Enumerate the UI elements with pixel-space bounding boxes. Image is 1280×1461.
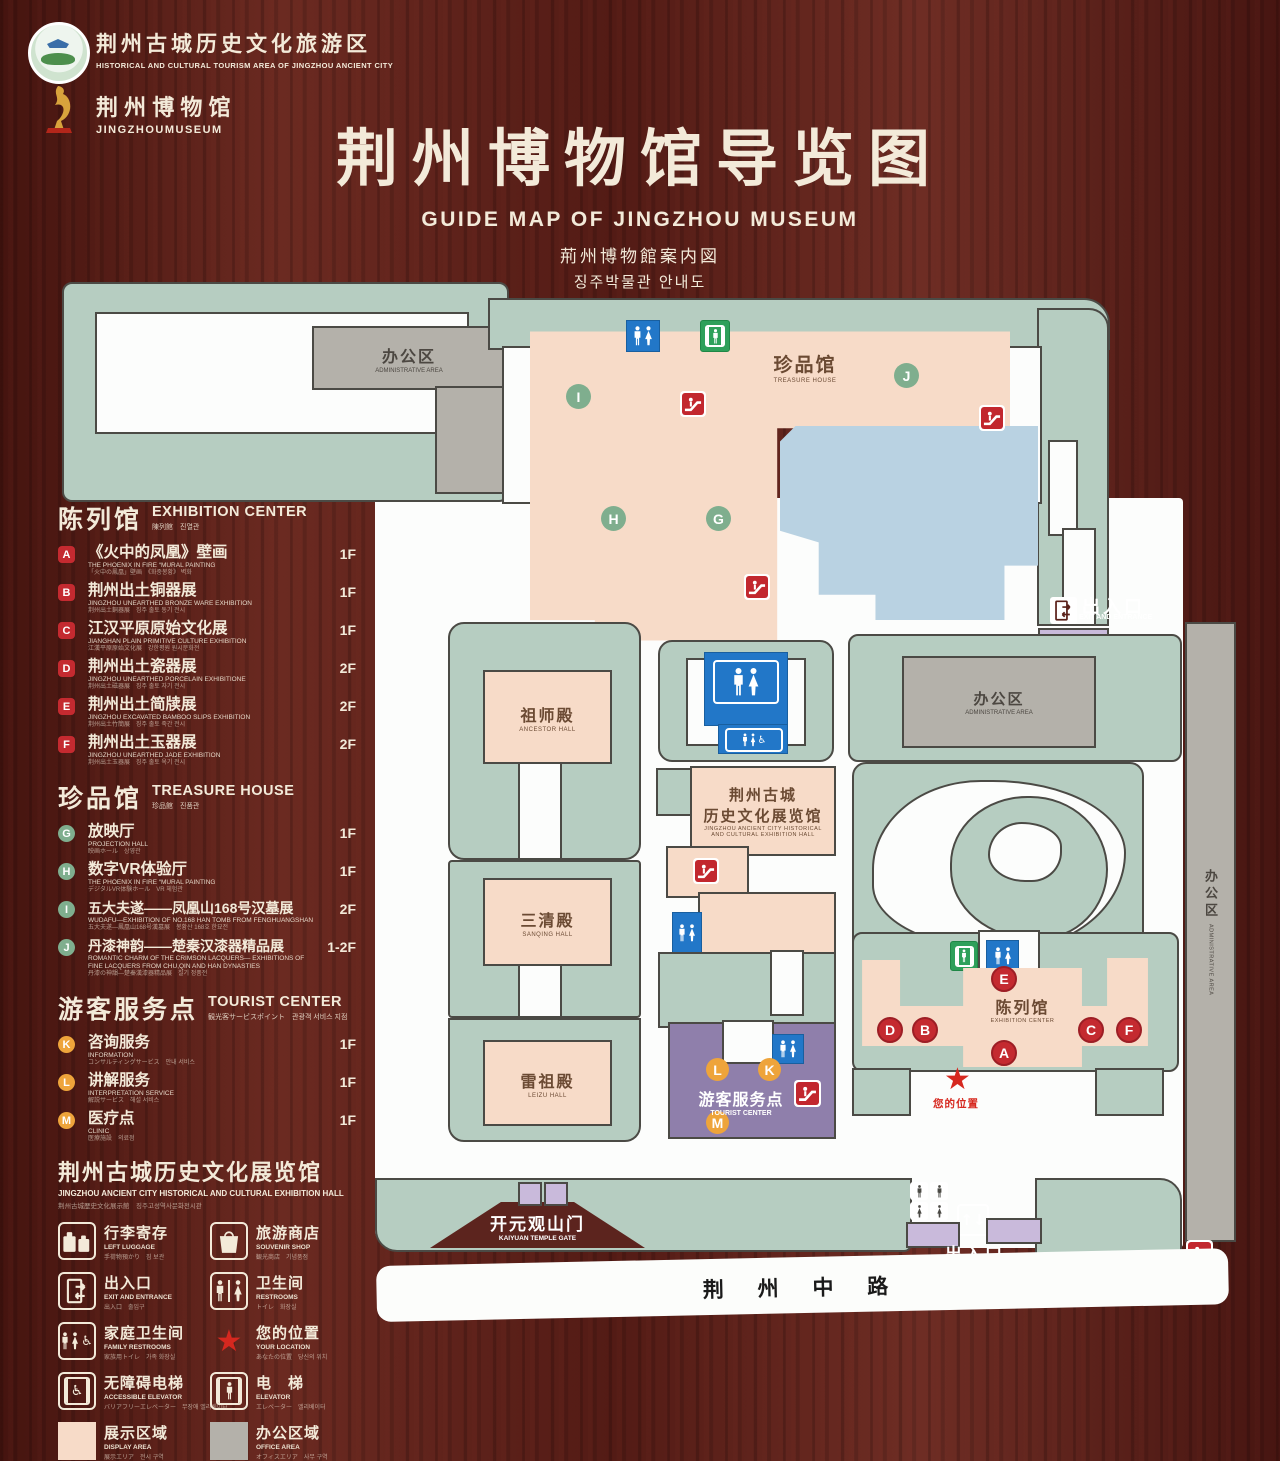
symbol-souvenir-shop: 旅游商店 SOUVENIR SHOP 観光商店 기념품점 xyxy=(210,1222,356,1261)
sym3-en: RESTROOMS xyxy=(256,1294,304,1301)
sym6-en: ACCESSIBLE ELEVATOR xyxy=(104,1394,228,1401)
marker-I: I xyxy=(566,384,591,409)
ancestor-corridor xyxy=(518,758,562,860)
symbol-elevator: 电 梯 ELEVATOR エレベーター 엘리베이터 xyxy=(210,1372,356,1411)
sanqing-hall-building: 三清殿 SANQING HALL xyxy=(483,878,612,966)
item-F-zh: 荆州出土玉器展 xyxy=(88,734,314,752)
leizu-hall-building: 雷祖殿 LEIZU HALL xyxy=(483,1040,612,1126)
symbol-exit-entrance: 出入口 EXIT AND ENTRANCE 出入口 출입구 xyxy=(58,1272,210,1311)
museum-logo-title: 荆 州 博 物 馆 JINGZHOUMUSEUM xyxy=(96,90,230,136)
item-E-sub: 荆州出土竹簡展 징주 출토 죽간 전시 xyxy=(88,722,314,729)
admin-e-label-en: ADMINISTRATIVE AREA xyxy=(965,710,1033,716)
pond xyxy=(780,426,1038,620)
sec3-en: TOURIST CENTER xyxy=(208,994,347,1010)
restroom-sign-north-icon xyxy=(626,320,660,352)
item-F-en: JINGZHOU UNEARTHED JADE EXHIBITION xyxy=(88,752,314,760)
badge-F: F xyxy=(58,736,75,753)
sym5-en: YOUR LOCATION xyxy=(256,1344,327,1351)
item-L-en: INTERPRETATION SERVICE xyxy=(88,1090,314,1098)
item-E-en: JINGZHOU EXCAVATED BAMBOO SLIPS EXHIBITI… xyxy=(88,714,314,722)
badge-E: E xyxy=(58,698,75,715)
museum-logo-en: JINGZHOUMUSEUM xyxy=(96,124,230,136)
badge-A: A xyxy=(58,546,75,563)
item-L-zh: 讲解服务 xyxy=(88,1072,314,1090)
hist-hall-lower xyxy=(698,892,836,956)
item-C-zh: 江汉平原原始文化展 xyxy=(88,620,314,638)
item-A-zh: 《火中的凤凰》壁画 xyxy=(88,544,314,562)
badge-B: B xyxy=(58,584,75,601)
legend-section-exhibition-header: 陈列馆 EXHIBITION CENTER 陳列館 진열관 xyxy=(58,500,356,536)
leizu-label-zh: 雷祖殿 xyxy=(520,1068,574,1092)
admin-nw-building: 办公区 ADMINISTRATIVE AREA xyxy=(312,326,506,390)
your-location-label: 您的位置 xyxy=(933,1096,979,1111)
item-E-zh: 荆州出土简牍展 xyxy=(88,696,314,714)
tourist-label-zh: 游客服务点 xyxy=(676,1086,806,1110)
item-C-floor: 1F xyxy=(320,622,356,653)
item-C-en: JIANGHAN PLAIN PRIMITIVE CULTURE EXHIBIT… xyxy=(88,638,314,646)
sym0-zh: 行李寄存 xyxy=(104,1222,168,1243)
hist-hall-en2: AND CULTURAL EXHIBITION HALL xyxy=(711,832,815,838)
hall-note: 荆州古城历史文化展览馆 JINGZHOU ANCIENT CITY HISTOR… xyxy=(58,1155,356,1210)
page-title: 荆州博物馆导览图 xyxy=(250,108,1030,198)
treasure-house-label: 珍品馆 TREASURE HOUSE xyxy=(745,350,865,392)
item-J-zh: 丹漆神韵——楚秦汉漆器精品展 xyxy=(88,937,314,955)
gate-pillar-w xyxy=(518,1182,542,1206)
item-K-zh: 咨询服务 xyxy=(88,1034,314,1052)
legend-item-B: B 荆州出土铜器展 JINGZHOU UNEARTHED BRONZE WARE… xyxy=(58,582,356,615)
item-G-sub: 映画ホール 상영관 xyxy=(88,849,314,856)
location-star-icon: ★ xyxy=(210,1322,248,1360)
marker-D: D xyxy=(877,1017,903,1043)
item-A-floor: 1F xyxy=(320,546,356,577)
hist-hall-main: 荆州古城 历史文化展览馆 JINGZHOU ANCIENT CITY HISTO… xyxy=(690,766,836,856)
sec2-zh: 珍品馆 xyxy=(58,779,142,815)
sym1-zh: 旅游商店 xyxy=(256,1222,320,1243)
legend-item-A: A 《火中的凤凰》壁画 THE PHOENIX IN FIRE “MURAL P… xyxy=(58,544,356,577)
museum-logo-zh: 荆 州 博 物 馆 xyxy=(96,90,230,122)
item-C-sub: 江漢平原原始文化展 강한평원 원시문화전 xyxy=(88,646,314,653)
tourist-lawn xyxy=(658,952,836,1028)
sym7-sub: エレベーター 엘리베이터 xyxy=(256,1402,326,1411)
sym0-en: LEFT LUGGAGE xyxy=(104,1244,168,1251)
exhibition-grounds-tab-e xyxy=(1095,1068,1164,1116)
ancestor-label-en: ANCESTOR HALL xyxy=(519,727,575,733)
exhibition-label: 陈列馆 EXHIBITION CENTER xyxy=(960,994,1085,1024)
marker-A: A xyxy=(991,1040,1017,1066)
sanqing-label-zh: 三清殿 xyxy=(520,907,574,931)
legend-item-G: G 放映厅 PROJECTION HALL 映画ホール 상영관 1F xyxy=(58,823,356,856)
item-G-en: PROJECTION HALL xyxy=(88,841,314,849)
badge-K: K xyxy=(58,1036,75,1053)
item-H-floor: 1F xyxy=(320,863,356,894)
sym4-sub: 家族用トイレ 가족 화장실 xyxy=(104,1352,184,1361)
admin-nw-label-en: ADMINISTRATIVE AREA xyxy=(375,368,443,374)
sym4-zh: 家庭卫生间 xyxy=(104,1322,184,1343)
sym4-en: FAMILY RESTROOMS xyxy=(104,1344,184,1351)
admin-strip-building: 办公区 ADMINISTRATIVE AREA xyxy=(1185,622,1236,1242)
garden-pondlet xyxy=(988,822,1062,882)
office-area-swatch xyxy=(210,1422,248,1460)
page-title-block: 荆州博物馆导览图 GUIDE MAP OF JINGZHOU MUSEUM 荊州… xyxy=(250,108,1030,292)
tourism-area-en: HISTORICAL AND CULTURAL TOURISM AREA OF … xyxy=(96,61,393,70)
tourist-center-label: 游客服务点 TOURIST CENTER xyxy=(676,1086,806,1117)
gate-label-zh: 开元观山门 xyxy=(455,1210,620,1235)
item-D-sub: 荆州出土磁器展 징주 출토 자기 전시 xyxy=(88,684,314,691)
item-D-zh: 荆州出土瓷器展 xyxy=(88,658,314,676)
family-restroom-icon: ♿ xyxy=(58,1322,96,1360)
hist-hall-en1: JINGZHOU ANCIENT CITY HISTORICAL xyxy=(704,826,822,832)
ancestor-label-zh: 祖师殿 xyxy=(520,702,574,726)
leizu-label-en: LEIZU HALL xyxy=(528,1093,567,1099)
item-H-en: THE PHOENIX IN FIRE “MURAL PAINTING xyxy=(88,879,314,887)
item-J-floor: 1-2F xyxy=(320,939,356,978)
admin-strip-label-zh: 办公区 xyxy=(1201,869,1220,920)
legend-item-C: C 江汉平原原始文化展 JIANGHAN PLAIN PRIMITIVE CUL… xyxy=(58,620,356,653)
legend-item-H: H 数字VR体验厅 THE PHOENIX IN FIRE “MURAL PAI… xyxy=(58,861,356,894)
elevator-sign-exhibition-icon xyxy=(950,941,978,971)
sym7-zh: 电 梯 xyxy=(256,1372,326,1393)
sanqing-corridor xyxy=(518,960,562,1018)
admin-nw-label-zh: 办公区 xyxy=(382,343,436,367)
badge-C: C xyxy=(58,622,75,639)
page-title-en: GUIDE MAP OF JINGZHOU MUSEUM xyxy=(250,208,1030,232)
sec3-sub: 観光客サービスポイント 관광객 서비스 지점 xyxy=(208,1012,347,1022)
escalator-icon-2 xyxy=(979,405,1005,431)
accessible-elevator-icon: ♿ xyxy=(58,1372,96,1410)
display-area-swatch xyxy=(58,1422,96,1460)
admin-e-label-zh: 办公区 xyxy=(973,688,1024,709)
item-K-en: INFORMATION xyxy=(88,1052,314,1060)
symbol-left-luggage: 行李寄存 LEFT LUGGAGE 手荷物預かり 짐 보관 xyxy=(58,1222,210,1261)
sec1-sub: 陳列館 진열관 xyxy=(152,522,307,532)
page-title-ja: 荊州博物館案内図 xyxy=(250,242,1030,267)
sec1-zh: 陈列馆 xyxy=(58,500,142,536)
shopping-bag-icon xyxy=(210,1222,248,1260)
restroom-sign-central-icon xyxy=(704,652,788,726)
escalator-icon-1 xyxy=(680,391,706,417)
escalator-icon-3 xyxy=(744,574,770,600)
sanqing-label-en: SANQING HALL xyxy=(522,932,572,938)
museum-logo-phoenix-icon xyxy=(34,84,82,134)
area0-en: DISPLAY AREA xyxy=(104,1444,168,1451)
item-B-en: JINGZHOU UNEARTHED BRONZE WARE EXHIBITIO… xyxy=(88,600,314,608)
sym2-sub: 出入口 출입구 xyxy=(104,1302,172,1311)
restroom-icon xyxy=(210,1272,248,1310)
symbol-your-location: ★ 您的位置 YOUR LOCATION あなたの位置 당신의 위치 xyxy=(210,1322,356,1361)
tourist-label-en: TOURIST CENTER xyxy=(676,1110,806,1117)
item-H-sub: デジタルVR体験ホール VR 체험관 xyxy=(88,887,314,894)
guide-map-poster: { "palette":{ "wood":"#5a2019","cream":"… xyxy=(0,0,1280,1451)
item-M-en: CLINIC xyxy=(88,1128,314,1136)
legend-item-I: I 五大夫遂——凤凰山168号汉墓展 WUDAFU—EXHIBITION OF … xyxy=(58,899,356,932)
hills-icon xyxy=(41,53,75,65)
item-D-floor: 2F xyxy=(320,660,356,691)
item-K-sub: コンサルティングサービス 안내 서비스 xyxy=(88,1060,314,1067)
legend-item-K: K 咨询服务 INFORMATION コンサルティングサービス 안내 서비스 1… xyxy=(58,1034,356,1067)
sym2-zh: 出入口 xyxy=(104,1272,172,1293)
item-I-sub: 五大夫遂—鳳凰山168号漢墓展 봉황산 168호 한묘전 xyxy=(88,925,314,932)
sym3-sub: トイレ 화장실 xyxy=(256,1302,304,1311)
hall-note-sub: 荆州古城歴史文化展示館 징주고성역사문화전시관 xyxy=(58,1200,356,1210)
marker-C: C xyxy=(1078,1017,1104,1043)
legend-section-tourist-header: 游客服务点 TOURIST CENTER 観光客サービスポイント 관광객 서비스… xyxy=(58,990,356,1026)
updown-arrows-icon: ↑↓ xyxy=(957,1204,989,1236)
pavilion-icon xyxy=(47,39,69,48)
ancestor-hall-building: 祖师殿 ANCESTOR HALL xyxy=(483,670,612,764)
area-office: 办公区域 OFFICE AREA オフィスエリア 사무 구역 xyxy=(210,1422,356,1461)
item-I-en: WUDAFU—EXHIBITION OF NO.168 HAN TOMB FRO… xyxy=(88,917,314,925)
elevator-sign-north-icon xyxy=(700,320,730,352)
hist-hall-zh1: 荆州古城 xyxy=(729,784,797,805)
item-M-floor: 1F xyxy=(320,1112,356,1143)
legend-item-E: E 荆州出土简牍展 JINGZHOU EXCAVATED BAMBOO SLIP… xyxy=(58,696,356,729)
item-J-en: ROMANTIC CHARM OF THE CRIMSON LACQUERS— … xyxy=(88,955,314,971)
item-M-zh: 医疗点 xyxy=(88,1110,314,1128)
sym1-sub: 観光商店 기념품점 xyxy=(256,1252,320,1261)
tourism-area-zh: 荆州古城历史文化旅游区 xyxy=(96,28,393,58)
sym6-sub: バリアフリーエレベーター 무장애 엘리베이터 xyxy=(104,1402,228,1411)
badge-M: M xyxy=(58,1112,75,1129)
legend-item-L: L 讲解服务 INTERPRETATION SERVICE 解説サービス 해설 … xyxy=(58,1072,356,1105)
badge-I: I xyxy=(58,901,75,918)
symbol-accessible-elevator: ♿ 无障碍电梯 ACCESSIBLE ELEVATOR バリアフリーエレベーター… xyxy=(58,1372,210,1411)
tourism-area-logo xyxy=(28,22,90,84)
symbol-legend: 行李寄存 LEFT LUGGAGE 手荷物預かり 짐 보관 旅游商店 SOUVE… xyxy=(58,1222,356,1461)
exit-ne-label-en: EXIT AND ENTRANCE xyxy=(1079,614,1152,621)
sym5-sub: あなたの位置 당신의 위치 xyxy=(256,1352,327,1361)
item-I-zh: 五大夫遂——凤凰山168号汉墓展 xyxy=(88,899,314,917)
treasure-label-zh: 珍品馆 xyxy=(773,350,836,377)
badge-G: G xyxy=(58,825,75,842)
your-location-star-icon: ★ xyxy=(944,1062,971,1097)
badge-H: H xyxy=(58,863,75,880)
elevator-cluster-icon xyxy=(910,1182,948,1220)
item-F-floor: 2F xyxy=(320,736,356,767)
item-F-sub: 荆州出土玉器展 징주 출토 옥기 전시 xyxy=(88,760,314,767)
item-A-sub: 「火中の鳳凰」壁画 《화중봉황》 벽화 xyxy=(88,570,314,577)
item-L-sub: 解説サービス 해설 서비스 xyxy=(88,1098,314,1105)
item-J-sub: 丹漆の神韻—楚秦漢漆器精品展 칠기 정품전 xyxy=(88,971,314,978)
item-B-floor: 1F xyxy=(320,584,356,615)
marker-B: B xyxy=(912,1017,938,1043)
admin-strip-label-en: ADMINISTRATIVE AREA xyxy=(1208,924,1214,995)
legend-item-D: D 荆州出土瓷器展 JINGZHOU UNEARTHED PORCELAIN E… xyxy=(58,658,356,691)
item-K-floor: 1F xyxy=(320,1036,356,1067)
item-M-sub: 医療施設 의료점 xyxy=(88,1136,314,1143)
marker-F: F xyxy=(1116,1017,1142,1043)
symbol-family-restrooms: ♿ 家庭卫生间 FAMILY RESTROOMS 家族用トイレ 가족 화장실 xyxy=(58,1322,210,1361)
item-I-floor: 2F xyxy=(320,901,356,932)
marker-H: H xyxy=(601,506,626,531)
marker-G: G xyxy=(706,506,731,531)
family-restroom-sign-icon: ♿ xyxy=(718,724,788,754)
exit-ne-icon xyxy=(1050,597,1077,624)
hist-hall-zh2: 历史文化展览馆 xyxy=(703,805,822,826)
escalator-icon-4 xyxy=(693,858,719,884)
badge-D: D xyxy=(58,660,75,677)
area0-zh: 展示区域 xyxy=(104,1422,168,1443)
sec3-zh: 游客服务点 xyxy=(58,990,198,1026)
item-G-zh: 放映厅 xyxy=(88,823,314,841)
area1-zh: 办公区域 xyxy=(256,1422,328,1443)
area1-en: OFFICE AREA xyxy=(256,1444,328,1451)
exhibition-label-zh: 陈列馆 xyxy=(960,994,1085,1018)
area1-sub: オフィスエリア 사무 구역 xyxy=(256,1452,328,1461)
symbol-restrooms: 卫生间 RESTROOMS トイレ 화장실 xyxy=(210,1272,356,1311)
sym2-en: EXIT AND ENTRANCE xyxy=(104,1294,172,1301)
item-B-sub: 荆州出土銅器展 징주 출토 동기 전시 xyxy=(88,608,314,615)
legend-item-M: M 医疗点 CLINIC 医療施設 의료점 1F xyxy=(58,1110,356,1143)
area-display: 展示区域 DISPLAY AREA 展示エリア 전시 구역 xyxy=(58,1422,210,1461)
road-label: 荆 州 中 路 xyxy=(376,1263,1228,1311)
sym5-zh: 您的位置 xyxy=(256,1322,327,1343)
treasure-label-en: TREASURE HOUSE xyxy=(774,378,837,384)
item-G-floor: 1F xyxy=(320,825,356,856)
sym3-zh: 卫生间 xyxy=(256,1272,304,1293)
tourism-area-title: 荆州古城历史文化旅游区 HISTORICAL AND CULTURAL TOUR… xyxy=(96,28,393,70)
hall-note-en: JINGZHOU ANCIENT CITY HISTORICAL AND CUL… xyxy=(58,1189,356,1198)
item-E-floor: 2F xyxy=(320,698,356,729)
legend-section-treasure-header: 珍品馆 TREASURE HOUSE 珍品館 진품관 xyxy=(58,779,356,815)
gate-label-en: KAIYUAN TEMPLE GATE xyxy=(455,1235,620,1242)
sym1-en: SOUVENIR SHOP xyxy=(256,1244,320,1251)
exhibition-label-en: EXHIBITION CENTER xyxy=(960,1018,1085,1024)
sec1-en: EXHIBITION CENTER xyxy=(152,504,307,520)
marker-E: E xyxy=(991,966,1017,992)
hall-note-zh: 荆州古城历史文化展览馆 xyxy=(58,1155,356,1187)
tourist-lawn-path xyxy=(770,950,804,1016)
restroom-sign-west-icon xyxy=(672,912,702,954)
item-L-floor: 1F xyxy=(320,1074,356,1105)
path-west-of-treasure xyxy=(502,346,534,504)
exit-door-icon xyxy=(58,1272,96,1310)
area0-sub: 展示エリア 전시 구역 xyxy=(104,1452,168,1461)
legend-panel: 陈列馆 EXHIBITION CENTER 陳列館 진열관 A 《火中的凤凰》壁… xyxy=(58,500,356,1461)
marker-J: J xyxy=(894,363,919,388)
exhibition-grounds-tab-w xyxy=(852,1068,911,1116)
item-B-zh: 荆州出土铜器展 xyxy=(88,582,314,600)
marker-K: K xyxy=(758,1058,781,1081)
luggage-icon xyxy=(58,1222,96,1260)
item-H-zh: 数字VR体验厅 xyxy=(88,861,314,879)
badge-J: J xyxy=(58,939,75,956)
badge-L: L xyxy=(58,1074,75,1091)
gate-pillar-e xyxy=(544,1182,568,1206)
kaiyuan-gate-label: 开元观山门 KAIYUAN TEMPLE GATE xyxy=(455,1210,620,1242)
sym0-sub: 手荷物預かり 짐 보관 xyxy=(104,1252,168,1261)
admin-nw-building-wing xyxy=(435,386,506,494)
legend-item-J: J 丹漆神韵——楚秦汉漆器精品展 ROMANTIC CHARM OF THE C… xyxy=(58,937,356,978)
item-D-en: JINGZHOU UNEARTHED PORCELAIN EXHIBITIONE xyxy=(88,676,314,684)
sym7-en: ELEVATOR xyxy=(256,1394,326,1401)
path-east-jog-1 xyxy=(1048,440,1078,536)
road-jingzhou-middle: 荆 州 中 路 xyxy=(376,1248,1229,1322)
legend-item-F: F 荆州出土玉器展 JINGZHOU UNEARTHED JADE EXHIBI… xyxy=(58,734,356,767)
sec2-sub: 珍品館 진품관 xyxy=(152,801,294,811)
marker-L: L xyxy=(706,1058,729,1081)
restroom-sign-tourist-icon xyxy=(772,1034,804,1064)
admin-e-building: 办公区 ADMINISTRATIVE AREA xyxy=(902,656,1096,748)
item-A-en: THE PHOENIX IN FIRE “MURAL PAINTING xyxy=(88,562,314,570)
sec2-en: TREASURE HOUSE xyxy=(152,783,294,799)
